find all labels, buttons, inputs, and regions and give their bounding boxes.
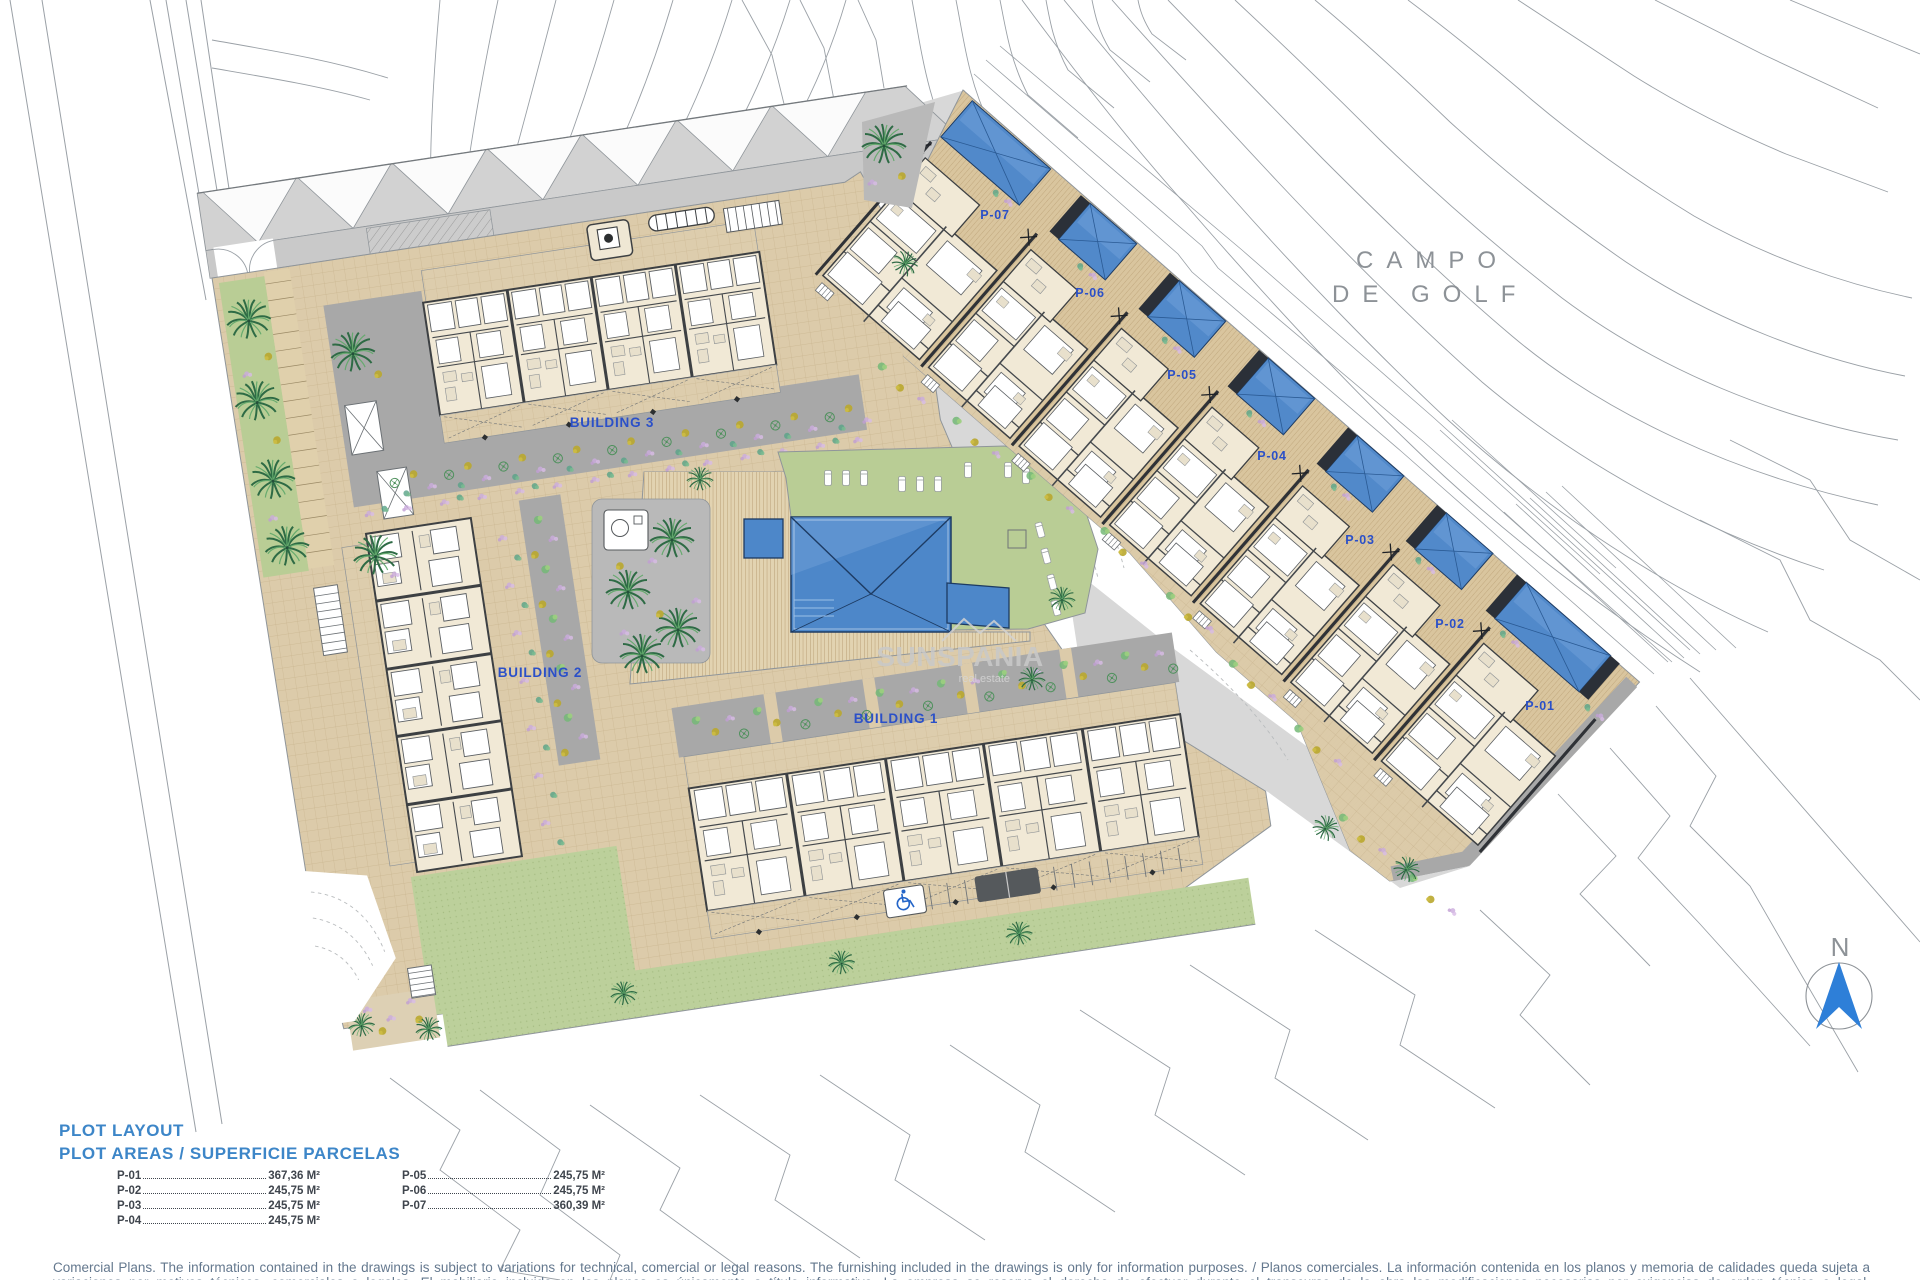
svg-text:N: N [1831, 932, 1850, 962]
svg-text:P-03: P-03 [1345, 533, 1375, 547]
svg-text:BUILDING 3: BUILDING 3 [570, 415, 655, 430]
svg-text:SUNSPANIA: SUNSPANIA [876, 641, 1043, 672]
svg-text:P-04: P-04 [1257, 449, 1287, 463]
svg-text:P-07: P-07 [980, 208, 1010, 222]
svg-text:BUILDING 2: BUILDING 2 [498, 665, 583, 680]
svg-text:BUILDING 1: BUILDING 1 [854, 711, 939, 726]
svg-text:P-05: P-05 [1167, 368, 1197, 382]
svg-text:DE GOLF: DE GOLF [1332, 281, 1528, 308]
svg-text:P-02: P-02 [1435, 617, 1465, 631]
svg-text:real estate: real estate [959, 673, 1010, 685]
svg-text:CAMPO: CAMPO [1356, 247, 1509, 274]
svg-text:P-01: P-01 [1525, 699, 1555, 713]
svg-text:P-06: P-06 [1075, 286, 1105, 300]
